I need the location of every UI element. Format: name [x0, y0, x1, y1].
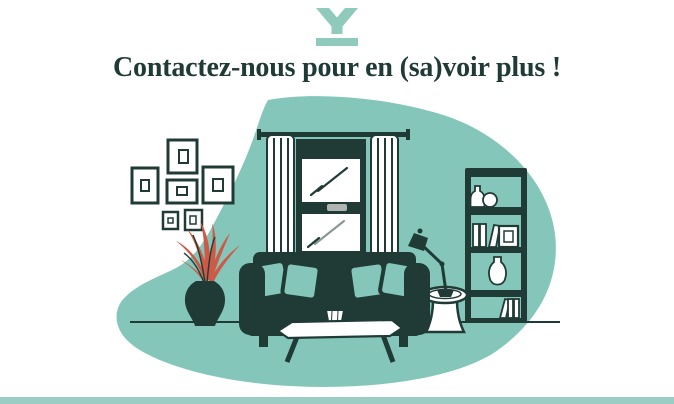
- page-title: Contactez-nous pour en (sa)voir plus !: [0, 52, 674, 84]
- shelf-picture-frame-inner: [504, 231, 513, 242]
- y-monogram-logo-icon: [316, 8, 358, 46]
- sofa-leg: [399, 335, 408, 347]
- lamp-knob: [418, 229, 423, 234]
- picture-frame: [168, 140, 197, 173]
- picture-frame: [163, 212, 178, 229]
- lamp-joint: [440, 262, 445, 267]
- picture-frame: [132, 168, 158, 203]
- side-table-base: [426, 300, 464, 332]
- book: [514, 299, 519, 318]
- book: [473, 224, 479, 247]
- book: [508, 299, 513, 318]
- logo-y-shape: [316, 8, 358, 34]
- living-room-illustration: [0, 94, 674, 396]
- sofa-armrest-right: [404, 263, 430, 335]
- pillow: [282, 262, 320, 300]
- picture-frame: [167, 180, 197, 203]
- coffee-table-top: [278, 320, 402, 338]
- window: [257, 129, 410, 256]
- picture-frame: [185, 210, 202, 230]
- left-curtain: [267, 135, 294, 256]
- contact-section: Contactez-nous pour en (sa)voir plus !: [0, 0, 674, 404]
- decor-ball: [483, 193, 497, 207]
- logo-base-bar: [316, 38, 358, 46]
- bottom-accent-bar: [0, 397, 674, 404]
- right-curtain: [371, 135, 398, 256]
- book: [480, 224, 486, 247]
- sofa-armrest-left: [239, 263, 265, 335]
- picture-frame: [203, 167, 233, 203]
- bookshelf: [465, 168, 527, 322]
- sofa-leg: [259, 335, 268, 347]
- window-handle: [327, 204, 347, 211]
